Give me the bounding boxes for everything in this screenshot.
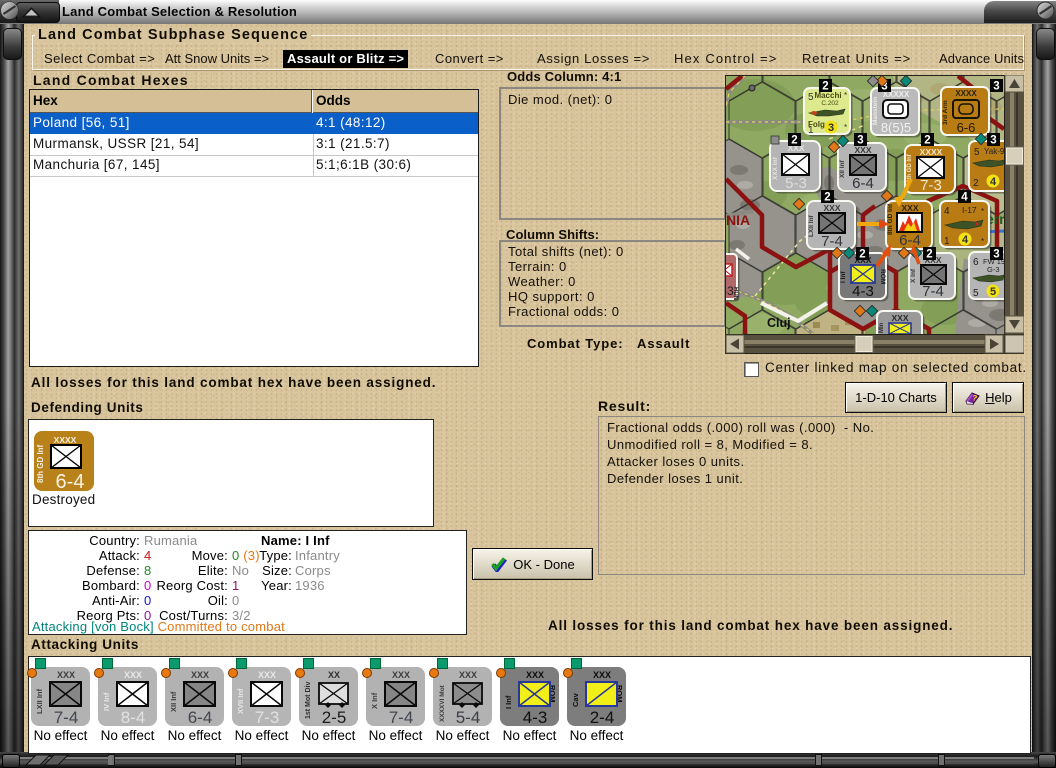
svg-text:X Inf: X Inf [370,692,379,709]
svg-text:4: 4 [990,176,997,188]
svg-text:XVII Inf: XVII Inf [236,688,245,714]
svg-text:1: 1 [944,236,950,247]
svg-text:XXX: XXX [526,670,544,680]
svg-text:ROM: ROM [879,269,886,284]
svg-text:I Inf: I Inf [840,271,847,283]
svg-text:2: 2 [926,249,932,261]
svg-text:MIn: MIn [879,322,885,333]
svg-text:?: ? [972,393,979,403]
svg-text:*: * [844,91,847,100]
svg-text:XXX: XXX [459,670,477,680]
svg-text:X Inf: X Inf [910,268,917,283]
svg-text:7-3: 7-3 [255,708,280,726]
svg-text:3: 3 [990,135,996,147]
svg-text:5: 5 [990,286,996,298]
svg-text:XII Inf: XII Inf [839,159,846,178]
svg-text:2: 2 [822,81,828,93]
svg-text:6-6: 6-6 [957,120,976,135]
svg-text:XXX: XXX [854,145,871,155]
svg-text:LXII Inf: LXII Inf [35,689,44,715]
svg-text:8th GD Inf: 8th GD Inf [36,444,45,483]
svg-text:XXXX: XXXX [955,89,977,98]
svg-text:4: 4 [962,234,969,246]
svg-text:5-4: 5-4 [456,708,481,726]
svg-text:Yak-9: Yak-9 [984,147,1005,156]
svg-text:3rd Arm: 3rd Arm [942,100,949,125]
svg-text:7-4: 7-4 [821,233,843,250]
svg-text:3: 3 [828,122,834,134]
svg-text:6-4: 6-4 [188,708,213,726]
svg-text:NIA: NIA [726,212,750,228]
svg-text:5-3: 5-3 [785,175,807,192]
svg-text:1st Mot Div: 1st Mot Div [305,682,312,719]
svg-text:XXX: XXX [191,670,209,680]
svg-text:G-3: G-3 [987,265,1000,274]
svg-text:XXXX: XXXX [920,147,943,157]
svg-text:XII Inf: XII Inf [169,691,178,712]
svg-text:2-5: 2-5 [322,708,347,726]
svg-text:3: 3 [993,81,999,93]
svg-text:2: 2 [791,135,797,147]
svg-text:-3: -3 [725,284,734,298]
svg-text:7-3: 7-3 [920,177,942,194]
svg-text:7-4: 7-4 [389,708,414,726]
svg-text:2: 2 [924,135,930,147]
svg-text:2: 2 [973,178,979,189]
svg-text:4: 4 [944,206,950,217]
svg-text:4-3: 4-3 [852,283,874,300]
svg-text:6: 6 [973,257,979,268]
svg-text:*: * [981,237,984,246]
svg-text:8th GD Inf: 8th GD Inf [887,203,894,235]
svg-text:2-4: 2-4 [590,708,615,726]
svg-text:XXX: XXX [901,203,918,213]
svg-text:I Inf: I Inf [504,695,513,709]
svg-text:XXXXVI Mot: XXXXVI Mot [439,684,446,722]
svg-text:8(5)5: 8(5)5 [881,120,911,135]
svg-text:2: 2 [859,249,865,261]
svg-text:4-3: 4-3 [523,708,548,726]
svg-text:6-4: 6-4 [852,175,874,192]
svg-text:Cav: Cav [571,692,580,707]
svg-text:XXX: XXX [57,670,75,680]
svg-text:XXX: XXX [593,670,611,680]
svg-text:XXX: XXX [823,203,840,213]
svg-text:8-4: 8-4 [121,708,146,726]
svg-text:3: 3 [993,249,999,261]
svg-text:2: 2 [824,192,830,204]
svg-text:Manstein: Manstein [872,97,879,125]
svg-text:XXX: XXX [392,670,410,680]
svg-text:4: 4 [961,192,968,204]
svg-text:XXX Inf: XXX Inf [772,156,779,180]
svg-text:XXX: XXX [258,670,276,680]
svg-text:7-4: 7-4 [922,283,944,300]
svg-text:6-4: 6-4 [56,471,85,491]
svg-text:Cluj: Cluj [767,316,791,330]
svg-text:IV Inf: IV Inf [102,692,111,711]
svg-text:3: 3 [857,135,863,147]
svg-text:C.202: C.202 [821,100,839,107]
svg-text:7-4: 7-4 [54,708,79,726]
svg-text:5: 5 [808,92,814,103]
svg-text:XXX: XXX [124,670,142,680]
svg-text:6-4: 6-4 [899,232,921,249]
svg-text:1: 1 [808,125,814,136]
svg-text:*: * [844,123,847,132]
svg-text:5: 5 [974,147,980,158]
svg-text:XXX: XXX [891,313,908,323]
svg-text:LXII Inf: LXII Inf [808,215,815,238]
svg-text:*: * [981,207,984,216]
svg-text:XXXX: XXXX [54,435,77,445]
svg-text:XX: XX [328,670,340,680]
svg-text:5: 5 [973,288,979,299]
svg-text:I-17: I-17 [962,205,977,215]
